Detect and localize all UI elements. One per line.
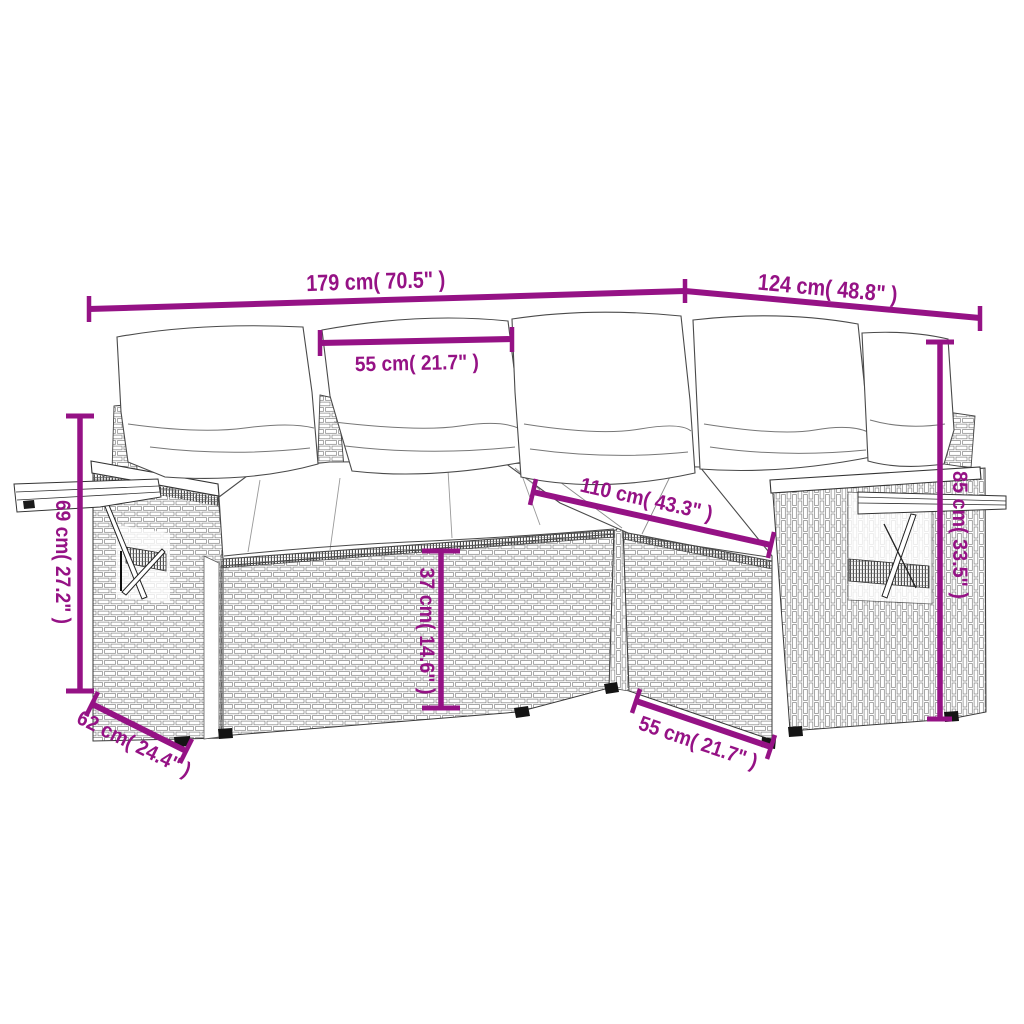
svg-text:85 cm( 33.5" ): 85 cm( 33.5" ) <box>948 471 971 599</box>
svg-text:37 cm( 14.6" ): 37 cm( 14.6" ) <box>415 568 438 695</box>
svg-text:55 cm( 21.7" ): 55 cm( 21.7" ) <box>355 351 479 377</box>
svg-text:179 cm( 70.5" ): 179 cm( 70.5" ) <box>306 266 446 296</box>
svg-text:69 cm( 27.2" ): 69 cm( 27.2" ) <box>51 500 74 624</box>
